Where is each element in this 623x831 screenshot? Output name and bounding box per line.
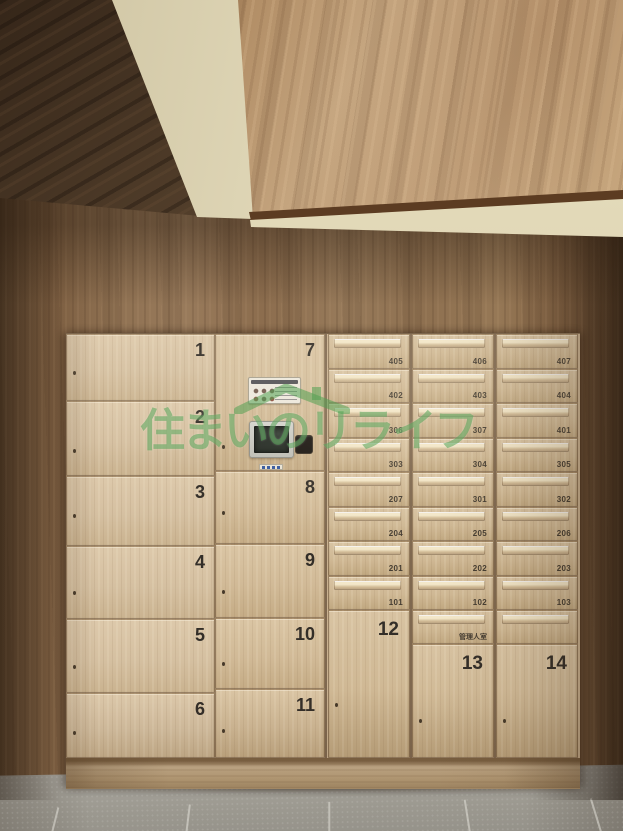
mailbox-door-manager: 管理人室 — [412, 610, 494, 644]
mailbox-number: 102 — [473, 599, 487, 607]
tile-joint — [182, 804, 191, 831]
tile-joint — [328, 802, 330, 831]
keyhole-icon — [73, 514, 76, 518]
locker-door-10: 10 — [215, 618, 325, 689]
mail-slot — [502, 443, 569, 452]
keyhole-icon — [73, 591, 76, 595]
keyhole-icon — [419, 719, 422, 723]
mail-slot — [502, 546, 569, 555]
mail-slot — [502, 339, 569, 348]
keyhole-icon — [335, 703, 338, 707]
locker-number: 10 — [295, 625, 315, 643]
locker-number: 2 — [195, 408, 205, 426]
mail-slot — [502, 512, 569, 521]
locker-door-3: 3 — [66, 476, 215, 546]
locker-door-12: 12 — [328, 610, 410, 758]
mailbox-door: 404 — [496, 369, 578, 403]
blue-button-strip — [259, 464, 283, 470]
tile-joint — [43, 807, 59, 831]
mailbox-number: 201 — [389, 565, 403, 573]
mailbox-number: 101 — [389, 599, 403, 607]
mail-slot — [502, 615, 569, 624]
usage-instructions-sticker — [248, 377, 301, 404]
mail-slot — [418, 477, 485, 486]
keyhole-icon — [73, 665, 76, 669]
mailbox-door: 405 — [328, 334, 410, 369]
locker-door-6: 6 — [66, 693, 215, 758]
mail-slot — [418, 374, 485, 383]
keyhole-icon — [73, 731, 76, 735]
mail-slot — [502, 408, 569, 417]
mailbox-number: 406 — [473, 358, 487, 366]
mail-slot — [418, 581, 485, 590]
tile-joint — [590, 798, 609, 831]
mail-slot — [334, 512, 401, 521]
mail-slot — [502, 374, 569, 383]
mailbox-door: 304 — [412, 438, 494, 472]
keyhole-icon — [222, 590, 225, 594]
mail-slot — [334, 546, 401, 555]
mailbox-number: 402 — [389, 392, 403, 400]
mail-slot — [418, 512, 485, 521]
mailbox-number: 306 — [389, 427, 403, 435]
touchscreen-display — [249, 421, 294, 458]
mailbox-number: 303 — [389, 461, 403, 469]
mailbox-door: 205 — [412, 507, 494, 541]
blue-buttons-icon — [262, 466, 281, 469]
mailbox-number: 302 — [557, 496, 571, 504]
delivery-locker-cabinet: 1 2 3 4 5 6 7 — [66, 333, 580, 788]
keyhole-icon — [222, 511, 225, 515]
mailbox-door: 403 — [412, 369, 494, 403]
locker-door-8: 8 — [215, 471, 325, 544]
locker-number: 8 — [305, 478, 315, 496]
mailbox-number: 301 — [473, 496, 487, 504]
mailbox-door: 206 — [496, 507, 578, 541]
locker-number: 6 — [195, 700, 205, 718]
keyhole-icon — [222, 662, 225, 666]
mailbox-door: 401 — [496, 403, 578, 438]
locker-number: 12 — [378, 620, 399, 639]
locker-number: 13 — [462, 654, 483, 673]
locker-number: 5 — [195, 626, 205, 644]
locker-number: 14 — [546, 654, 567, 673]
mailbox-door: 202 — [412, 541, 494, 576]
locker-door-13: 13 — [412, 644, 494, 758]
mailbox-door: 406 — [412, 334, 494, 369]
sticker-step-icons — [252, 387, 276, 403]
mail-slot — [502, 581, 569, 590]
mailbox-number: 304 — [473, 461, 487, 469]
mailbox-door: 302 — [496, 472, 578, 507]
cabinet-base-plinth — [66, 758, 580, 789]
mail-slot — [502, 477, 569, 486]
locker-door-11: 11 — [215, 689, 325, 758]
mailbox-door-unlabeled — [496, 610, 578, 644]
mail-slot — [418, 615, 485, 624]
lobby-parcel-locker-photo: 1 2 3 4 5 6 7 — [0, 0, 623, 831]
mailbox-door: 305 — [496, 438, 578, 472]
mailbox-door: 303 — [328, 438, 410, 472]
mailbox-door: 203 — [496, 541, 578, 576]
keyhole-icon — [222, 729, 225, 733]
locker-number: 4 — [195, 553, 205, 571]
tile-joint — [464, 800, 475, 831]
mailbox-number: 407 — [557, 358, 571, 366]
mailbox-door: 306 — [328, 403, 410, 438]
mailbox-number: 203 — [557, 565, 571, 573]
mailbox-door: 103 — [496, 576, 578, 610]
mailbox-number: 205 — [473, 530, 487, 538]
locker-door-14: 14 — [496, 644, 578, 758]
mailbox-door: 101 — [328, 576, 410, 610]
sticker-title-bar — [251, 380, 298, 384]
mailbox-door: 301 — [412, 472, 494, 507]
locker-door-5: 5 — [66, 619, 215, 693]
mail-slot — [334, 477, 401, 486]
mailbox-door: 307 — [412, 403, 494, 438]
locker-number: 9 — [305, 551, 315, 569]
locker-door-9: 9 — [215, 544, 325, 618]
mailbox-label: 管理人室 — [459, 634, 487, 641]
sticker-text-lines — [275, 387, 297, 403]
mailbox-door: 402 — [328, 369, 410, 403]
keyhole-icon — [73, 371, 76, 375]
mailbox-door: 407 — [496, 334, 578, 369]
mailbox-number: 403 — [473, 392, 487, 400]
mail-slot — [334, 339, 401, 348]
ic-card-reader — [295, 435, 313, 454]
mailbox-door: 204 — [328, 507, 410, 541]
mailbox-number: 305 — [557, 461, 571, 469]
mailbox-number: 401 — [557, 427, 571, 435]
keyhole-icon — [73, 449, 76, 453]
mail-slot — [418, 443, 485, 452]
keyhole-icon — [503, 719, 506, 723]
mailbox-number: 202 — [473, 565, 487, 573]
mailbox-door: 201 — [328, 541, 410, 576]
mailbox-number: 404 — [557, 392, 571, 400]
mailbox-number: 405 — [389, 358, 403, 366]
mailbox-number: 206 — [557, 530, 571, 538]
screen-glass — [254, 426, 289, 453]
locker-number: 1 — [195, 341, 205, 359]
mail-slot — [334, 408, 401, 417]
mail-slot — [334, 374, 401, 383]
locker-number: 7 — [305, 341, 315, 359]
locker-door-4: 4 — [66, 546, 215, 619]
locker-number: 3 — [195, 483, 205, 501]
section-divider — [325, 334, 327, 758]
mailbox-number: 204 — [389, 530, 403, 538]
mailbox-door: 102 — [412, 576, 494, 610]
keyhole-icon — [222, 445, 225, 449]
locker-door-7: 7 — [215, 334, 325, 471]
mail-slot — [334, 581, 401, 590]
mail-slot — [418, 546, 485, 555]
mailbox-number: 307 — [473, 427, 487, 435]
locker-number: 11 — [296, 696, 315, 714]
mailbox-number: 103 — [557, 599, 571, 607]
mail-slot — [334, 443, 401, 452]
mail-slot — [418, 408, 485, 417]
mail-slot — [418, 339, 485, 348]
locker-door-1: 1 — [66, 334, 215, 401]
mailbox-number: 207 — [389, 496, 403, 504]
mailbox-door: 207 — [328, 472, 410, 507]
locker-door-2: 2 — [66, 401, 215, 476]
